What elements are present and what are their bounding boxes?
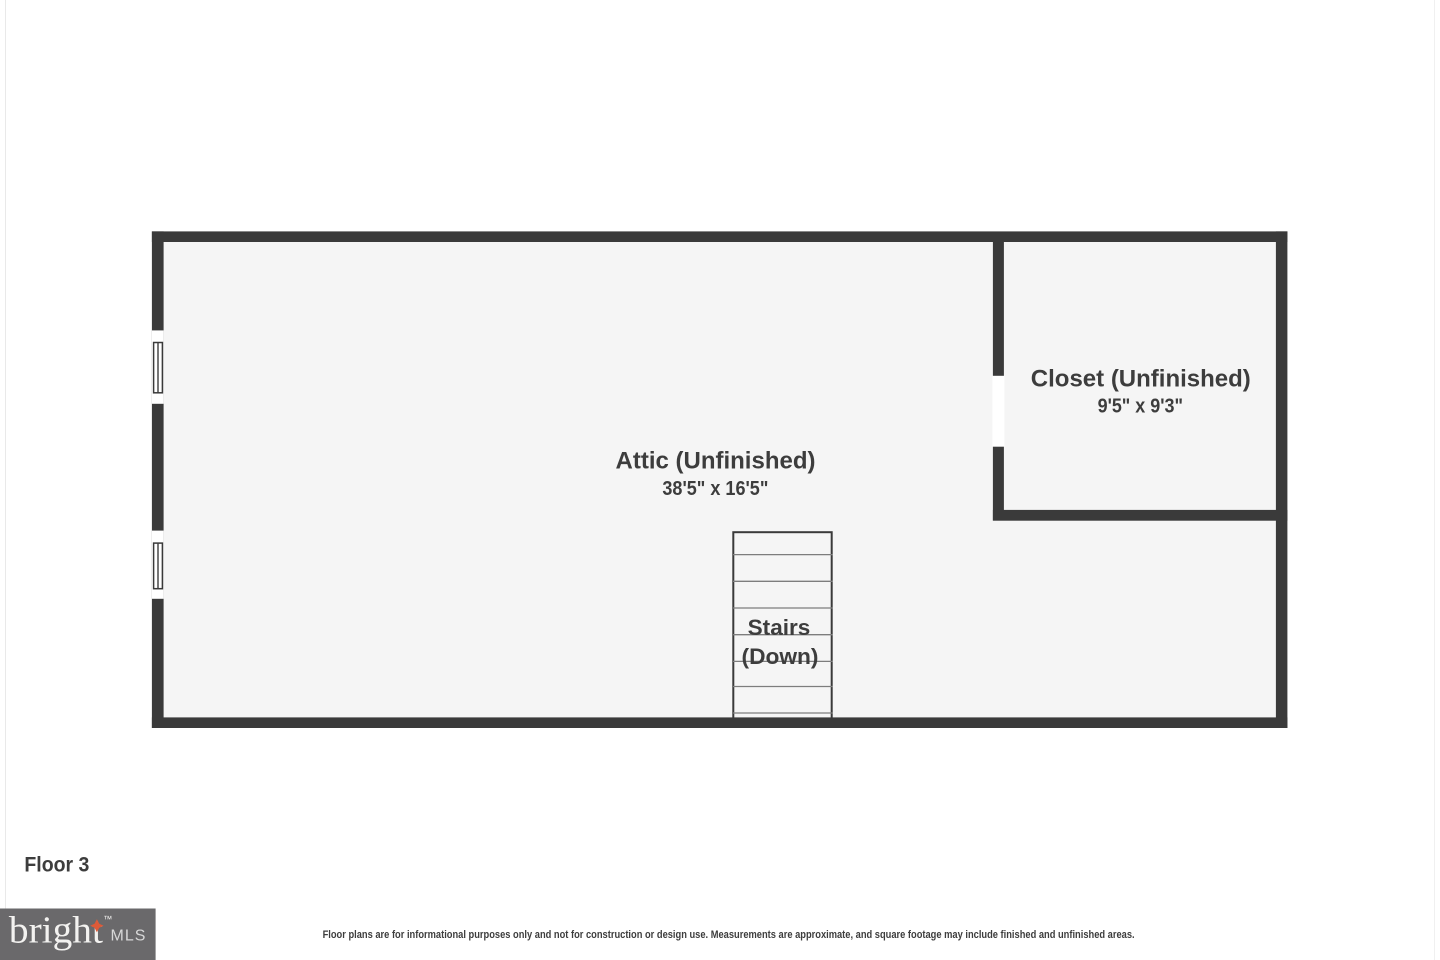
svg-text:Floor plans are for informatio: Floor plans are for informational purpos… [323, 929, 1135, 941]
svg-text:bright: bright [9, 910, 103, 952]
svg-text:MLS: MLS [111, 928, 147, 945]
svg-text:Stairs: Stairs [748, 615, 811, 640]
svg-text:™: ™ [103, 914, 112, 924]
svg-text:9'5" x 9'3": 9'5" x 9'3" [1098, 395, 1183, 417]
svg-text:Attic (Unfinished): Attic (Unfinished) [616, 447, 816, 474]
svg-text:38'5" x 16'5": 38'5" x 16'5" [662, 478, 768, 500]
svg-text:Closet (Unfinished): Closet (Unfinished) [1031, 365, 1251, 392]
svg-text:(Down): (Down) [742, 644, 819, 669]
svg-text:Floor 3: Floor 3 [24, 854, 89, 877]
